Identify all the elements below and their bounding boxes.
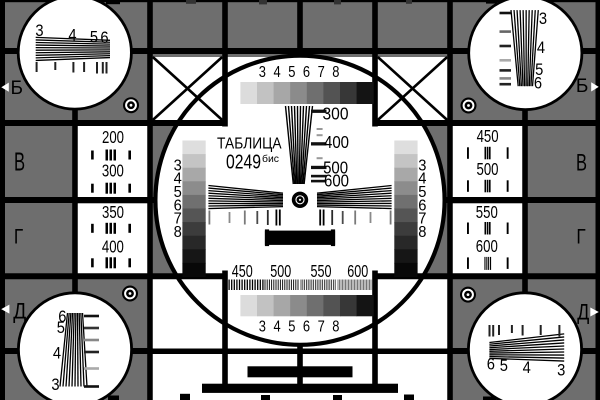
svg-text:6: 6 [100,29,108,47]
svg-text:Б: Б [576,75,589,97]
svg-text:6: 6 [303,319,310,336]
svg-text:3: 3 [557,362,565,380]
svg-text:350: 350 [102,202,124,222]
svg-text:600: 600 [476,236,498,256]
svg-text:ТАБЛИЦА: ТАБЛИЦА [217,136,282,153]
svg-text:5: 5 [500,357,508,375]
svg-text:3: 3 [539,10,547,28]
svg-text:Д: Д [577,300,589,325]
svg-text:0249: 0249 [226,152,261,174]
svg-text:8: 8 [174,224,182,241]
svg-text:В: В [576,149,587,176]
svg-text:6: 6 [534,75,542,93]
svg-text:5: 5 [288,319,295,336]
svg-text:6: 6 [303,64,310,81]
svg-text:450: 450 [232,261,253,281]
svg-text:600: 600 [347,261,368,281]
svg-text:550: 550 [476,202,498,222]
svg-text:500: 500 [270,261,291,281]
svg-text:3: 3 [259,64,266,81]
svg-text:Г: Г [14,224,23,249]
svg-text:550: 550 [311,261,332,281]
svg-text:8: 8 [332,64,339,81]
svg-text:4: 4 [274,319,281,336]
svg-text:4: 4 [537,39,545,57]
svg-text:600: 600 [324,170,349,190]
svg-text:5: 5 [57,319,65,337]
svg-text:4: 4 [53,345,61,363]
svg-text:5: 5 [288,64,295,81]
svg-text:В: В [14,149,25,177]
svg-text:3: 3 [259,319,266,336]
svg-text:6: 6 [487,356,495,374]
svg-text:450: 450 [477,126,499,146]
svg-text:4: 4 [523,359,531,377]
svg-text:7: 7 [318,64,325,81]
svg-text:8: 8 [418,224,426,241]
svg-text:5: 5 [90,28,98,46]
svg-text:3: 3 [51,376,59,394]
svg-text:Г: Г [576,224,585,249]
svg-text:8: 8 [332,319,339,336]
svg-text:500: 500 [477,159,499,179]
svg-text:4: 4 [68,26,76,44]
svg-text:7: 7 [318,319,325,336]
svg-text:4: 4 [274,64,281,81]
svg-text:Д: Д [13,299,26,324]
svg-text:200: 200 [102,127,124,147]
svg-text:300: 300 [102,160,124,180]
svg-text:300: 300 [323,104,349,124]
svg-text:бис: бис [262,154,279,165]
svg-text:3: 3 [35,22,43,40]
svg-text:400: 400 [324,132,349,152]
svg-text:400: 400 [102,236,124,256]
svg-text:Б: Б [11,77,24,99]
